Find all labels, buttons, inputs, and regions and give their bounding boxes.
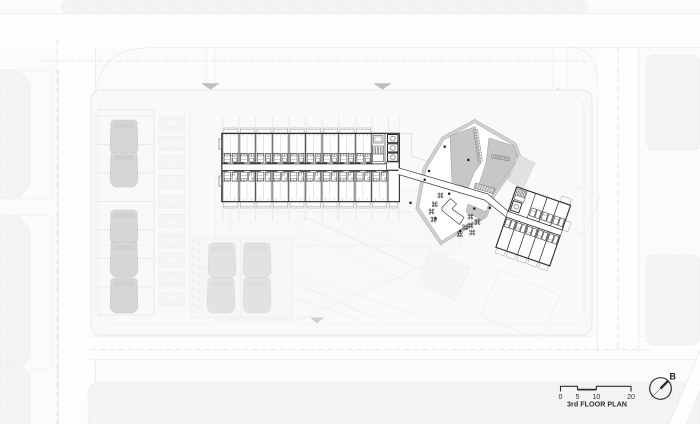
svg-text:20: 20 <box>627 394 635 401</box>
svg-text:B: B <box>670 372 676 382</box>
svg-text:3rd FLOOR PLAN: 3rd FLOOR PLAN <box>567 400 627 409</box>
svg-text:0: 0 <box>559 394 563 401</box>
